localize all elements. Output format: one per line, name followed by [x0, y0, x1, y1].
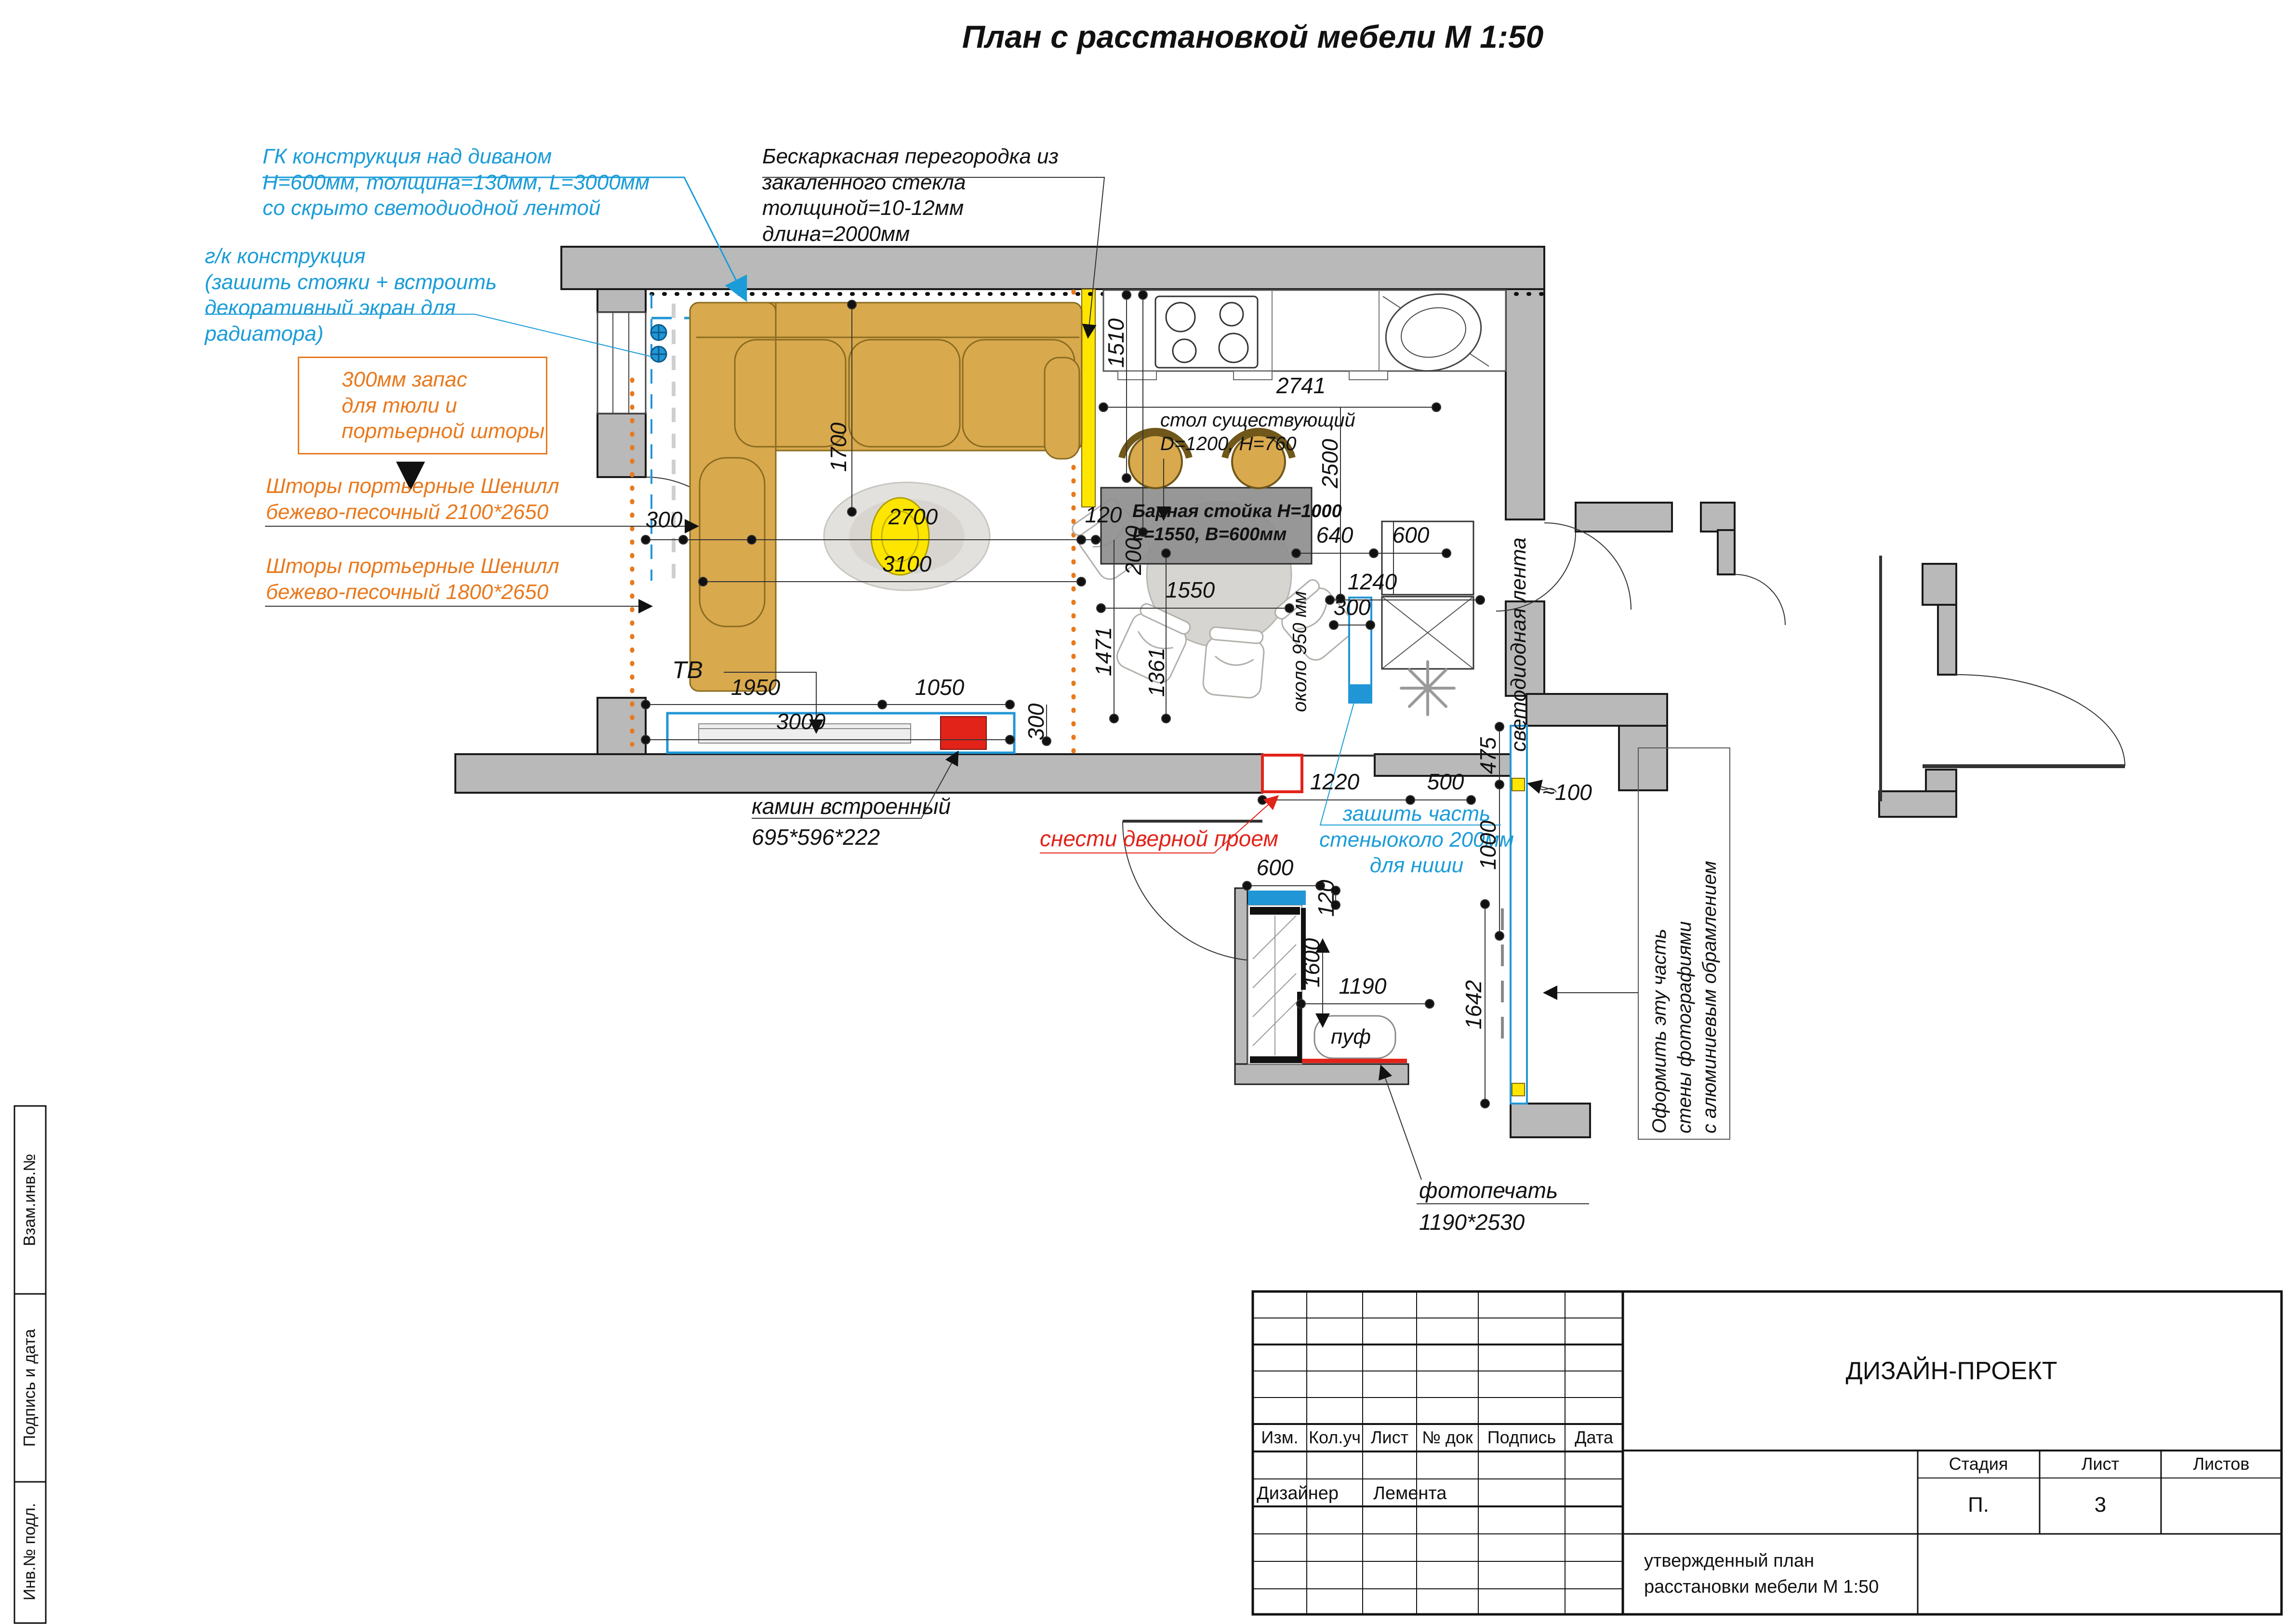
- dimension-label: 1050: [915, 674, 964, 700]
- tb-sheet-value: 3: [2095, 1493, 2106, 1517]
- dimension-label: 600: [1393, 522, 1430, 548]
- stamp-inv: Инв.№ подл.: [21, 1503, 40, 1600]
- dimension-label: 1220: [1310, 769, 1359, 795]
- note-decorate-wall: Оформить эту часть стены фотографиями с …: [1647, 748, 1722, 1133]
- note-photo-print: фотопечать 1190*2530: [1419, 1177, 1558, 1236]
- dimension-label: 120: [1085, 502, 1122, 528]
- corridor-shelf: [1248, 891, 1306, 905]
- tb-stage-value: П.: [1968, 1493, 1989, 1517]
- led-niche-strip: [1511, 726, 1527, 1104]
- stove: [1155, 296, 1258, 368]
- dimension-label: 3100: [882, 551, 931, 577]
- note-demolish: снести дверной проем: [1040, 825, 1278, 852]
- dimension-label: ~100: [1542, 779, 1592, 805]
- dimension-label: 1000: [1475, 821, 1501, 870]
- dimension-label: 120: [1313, 880, 1339, 917]
- glass-partition-strip: [1082, 289, 1095, 507]
- tb-stage-label: Стадия: [1949, 1454, 2008, 1474]
- walls: [455, 247, 1956, 1137]
- dimension-label: 1550: [1166, 577, 1215, 603]
- stamp-podpis: Подпись и дата: [21, 1329, 40, 1447]
- dimension-label: 2741: [1276, 373, 1326, 399]
- tb-col-koluch: Кол.уч: [1309, 1427, 1361, 1448]
- tb-col-podpis: Подпись: [1487, 1427, 1556, 1448]
- dimension-label: 1361: [1143, 648, 1169, 697]
- tb-col-data: Дата: [1575, 1427, 1613, 1448]
- dimension-label: 2000: [1120, 526, 1146, 575]
- dimension-label: 1642: [1460, 980, 1486, 1029]
- note-gk-radiator: г/к конструкция (зашить стояки + встроит…: [205, 243, 497, 347]
- note-bar-counter: Барная стойка Н=1000 L=1550, В=600мм: [1132, 500, 1342, 546]
- dimension-label: 500: [1427, 769, 1464, 795]
- photo-print-strip: [1302, 1059, 1407, 1063]
- dimension-label: 640: [1316, 522, 1353, 548]
- tb-designer-label: Дизайнер: [1257, 1483, 1339, 1504]
- tb-caption-line2: расстановки мебели М 1:50: [1644, 1577, 1879, 1597]
- tb-designer-name: Лемента: [1373, 1483, 1446, 1504]
- tb-sheets-label: Листов: [2193, 1454, 2250, 1474]
- dimension-label: 3000: [776, 708, 825, 734]
- tb-project: ДИЗАЙН-ПРОЕКТ: [1845, 1357, 2057, 1385]
- dimension-label: 1700: [825, 423, 851, 472]
- wardrobe: [1248, 905, 1306, 1064]
- tb-col-list: Лист: [1371, 1427, 1408, 1448]
- dimension-label: около 950 мм: [1289, 591, 1311, 712]
- dimension-label: 300: [646, 506, 683, 532]
- note-led-strip: светодиодная лента: [1506, 501, 1532, 752]
- fridge-snowflake-icon: [1401, 662, 1454, 715]
- stamp-vzam: Взам.инв.№: [21, 1154, 40, 1246]
- dimension-label: 1950: [731, 674, 780, 700]
- note-glass-partition: Бескаркасная перегородка из закаленного …: [762, 144, 1059, 247]
- page-title: План с расстановкой мебели М 1:50: [819, 18, 1686, 55]
- dimension-label: 300: [1023, 704, 1049, 741]
- drawing-sheet: План с расстановкой мебели М 1:50 ГК кон…: [0, 0, 2295, 1624]
- dimension-label: 600: [1257, 854, 1294, 880]
- demolish-doorway: [1262, 755, 1302, 792]
- dimension-label: 1510: [1103, 319, 1129, 368]
- tb-col-ndok: № док: [1422, 1427, 1473, 1448]
- dimension-label: 475: [1475, 737, 1501, 774]
- tb-col-izm: Изм.: [1261, 1427, 1298, 1448]
- fireplace: [941, 717, 986, 749]
- tv-label: ТВ: [672, 655, 703, 685]
- pouf-label: пуф: [1331, 1024, 1371, 1050]
- dimension-label: 2500: [1317, 439, 1343, 488]
- dimension-label: 2700: [889, 504, 938, 530]
- note-curtains-1: Шторы портьерные Шенилл бежево-песочный …: [266, 473, 559, 525]
- radiator-lamp-icon: [651, 325, 666, 362]
- window: [597, 312, 646, 413]
- note-gk-sofa: ГК конструкция над диваном Н=600мм, толщ…: [263, 144, 650, 221]
- tb-caption-line1: утвержденный план: [1644, 1551, 1814, 1571]
- dimension-label: 1471: [1090, 627, 1116, 676]
- note-curtains-2: Шторы портьерные Шенилл бежево-песочный …: [266, 553, 559, 605]
- dimension-label: 300: [1334, 594, 1371, 620]
- dimension-label: 1240: [1348, 569, 1397, 595]
- note-fireplace: камин встроенный 695*596*222: [752, 793, 951, 851]
- tb-sheet-label: Лист: [2082, 1454, 2119, 1474]
- dimension-label: 1600: [1299, 938, 1325, 987]
- note-curtain-reserve: 300мм запас для тюли и портьерной шторы: [298, 357, 547, 454]
- dimension-label: 1190: [1339, 973, 1387, 999]
